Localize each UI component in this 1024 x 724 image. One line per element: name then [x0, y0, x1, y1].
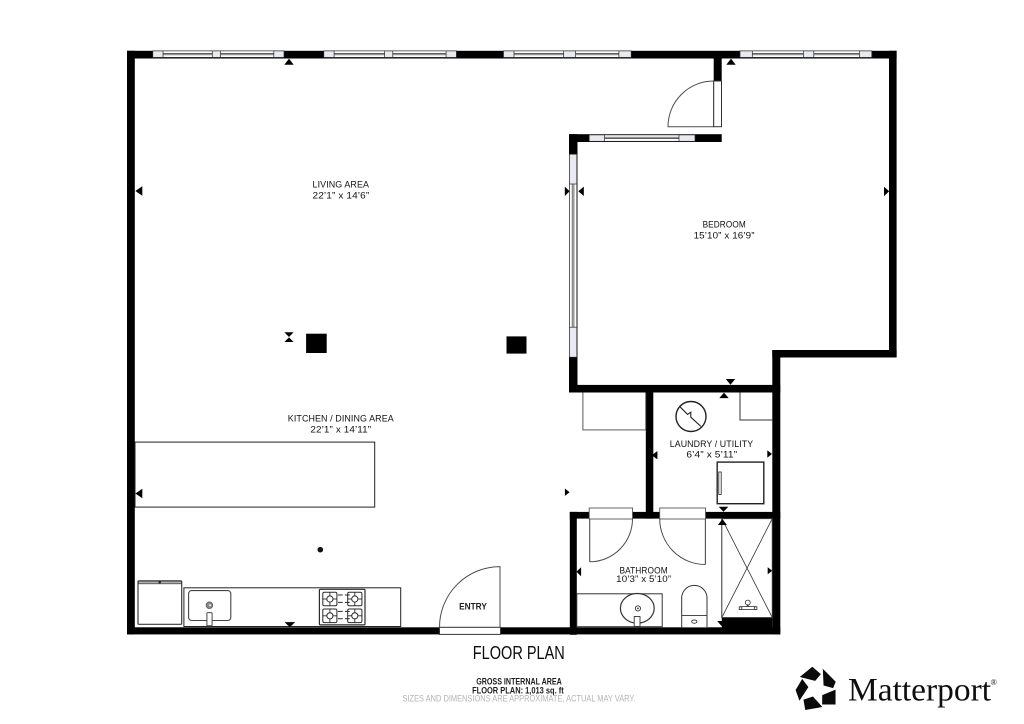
svg-text:KITCHEN / DINING AREA: KITCHEN / DINING AREA	[288, 413, 394, 424]
svg-text:FLOOR PLAN: FLOOR PLAN	[473, 643, 565, 663]
svg-text:®: ®	[991, 677, 998, 687]
svg-text:22’1” x 14’6”: 22’1” x 14’6”	[313, 191, 370, 202]
svg-text:SIZES AND DIMENSIONS ARE APPRO: SIZES AND DIMENSIONS ARE APPROXIMATE, AC…	[403, 694, 636, 704]
svg-text:LAUNDRY / UTILITY: LAUNDRY / UTILITY	[670, 439, 754, 450]
svg-text:15’10” x 16’9”: 15’10” x 16’9”	[694, 231, 755, 242]
svg-text:10’3” x 5’10”: 10’3” x 5’10”	[616, 574, 671, 585]
svg-text:6’4” x 5’11”: 6’4” x 5’11”	[686, 450, 737, 461]
svg-text:Matterport: Matterport	[848, 673, 991, 709]
svg-text:22’1” x 14’11”: 22’1” x 14’11”	[310, 424, 371, 435]
svg-text:BEDROOM: BEDROOM	[703, 220, 746, 231]
svg-text:ENTRY: ENTRY	[459, 601, 487, 611]
svg-text:LIVING AREA: LIVING AREA	[313, 179, 370, 190]
